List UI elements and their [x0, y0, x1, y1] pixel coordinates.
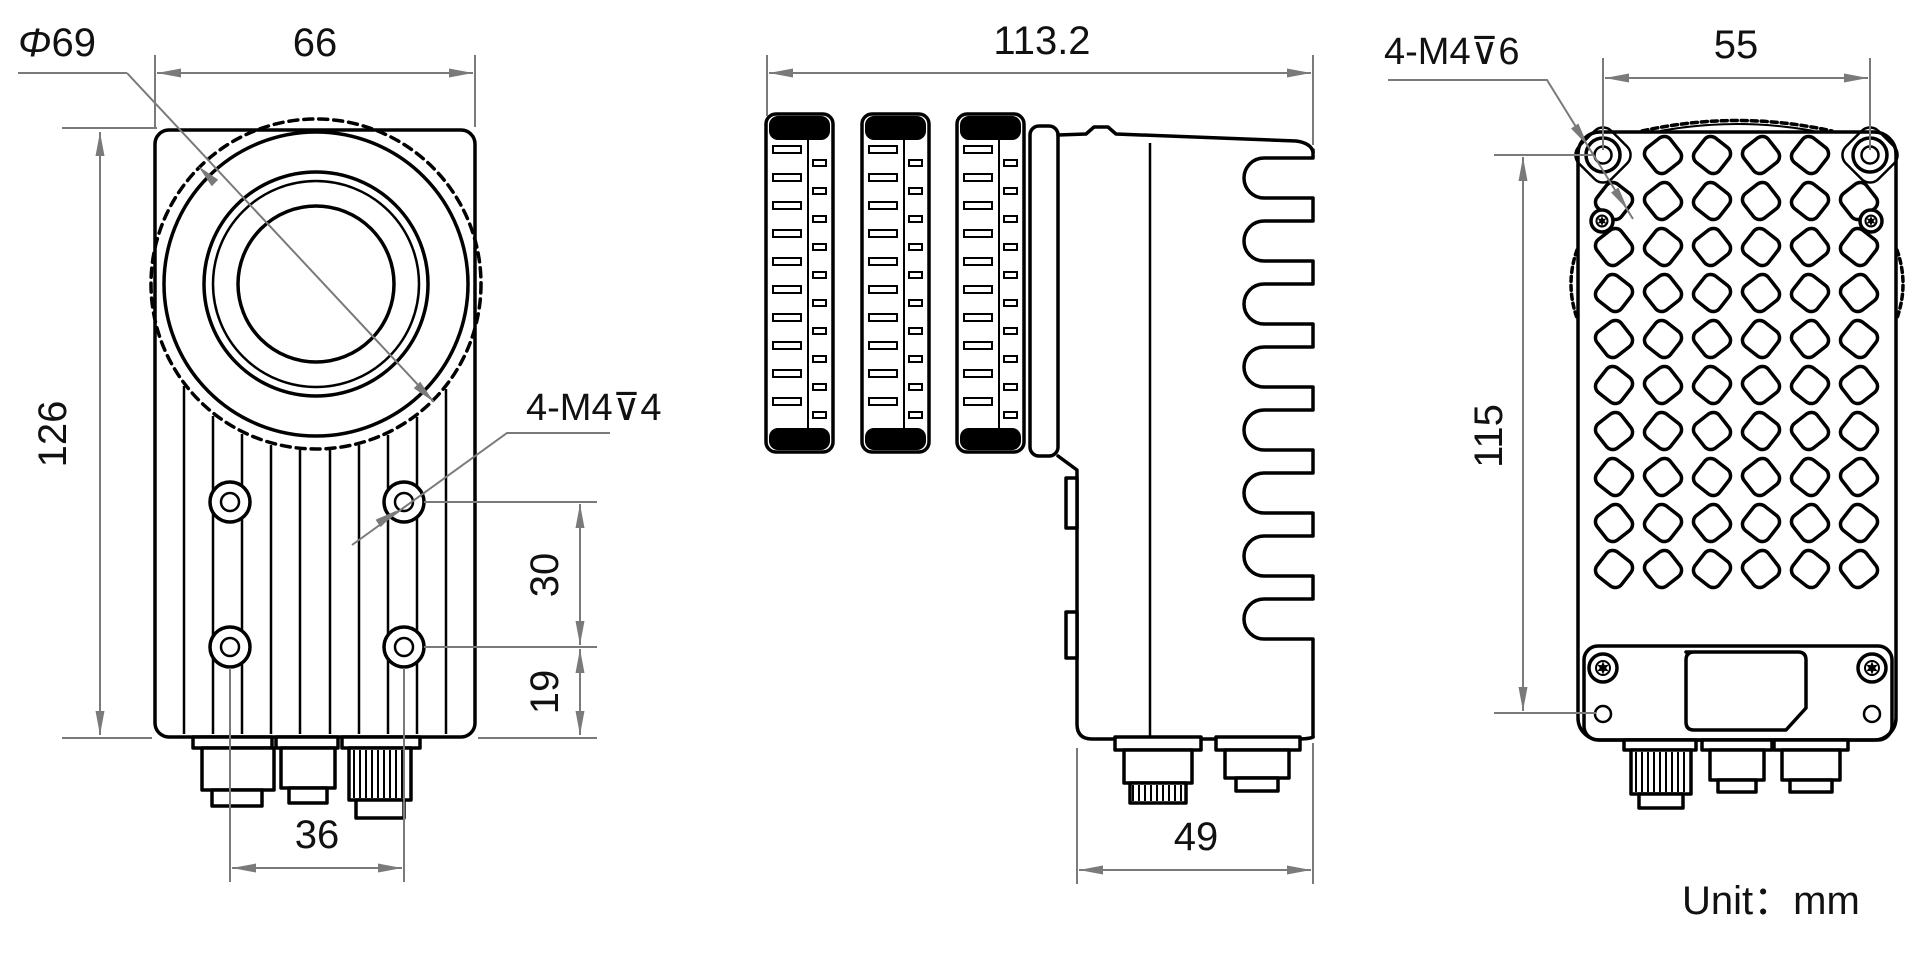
arrowhead — [1287, 866, 1311, 875]
knurl-slot — [869, 370, 897, 377]
knurl-slot — [909, 356, 922, 362]
knurl-slot — [1004, 272, 1017, 278]
knurl-slot — [964, 230, 992, 237]
knurl-slot — [813, 244, 826, 250]
connector-tip — [1718, 780, 1756, 792]
screw-hole — [384, 627, 424, 667]
arrowhead — [1519, 157, 1528, 181]
side-heatsink-fins — [1244, 150, 1313, 737]
connector-m12-tip — [356, 800, 404, 818]
dim-label-front-height: 126 — [31, 401, 75, 468]
back-right-knurl-bump — [1897, 250, 1903, 318]
dim-label-front-screws: 4-M4⊽4 — [526, 387, 662, 429]
knurl-slot — [869, 398, 897, 405]
connector-tip — [289, 788, 327, 803]
arrowhead — [157, 69, 181, 78]
knurl-slot — [869, 202, 897, 209]
knurl-slot — [1004, 328, 1017, 334]
lens-glass — [238, 206, 394, 362]
knurl-slot — [1004, 384, 1017, 390]
knurl-slot — [1004, 244, 1017, 250]
dim-label-front-width: 66 — [293, 21, 338, 65]
knurl-slot — [869, 258, 897, 265]
diameter-symbol: Φ — [18, 21, 51, 65]
screw-hole — [210, 627, 250, 667]
side-connectors — [1115, 737, 1300, 803]
front-connectors — [193, 737, 420, 818]
knurl-slot — [909, 384, 922, 390]
arrowhead — [378, 864, 402, 873]
knurl-slot — [869, 342, 897, 349]
technical-drawing: Φ69 66 126 4-M4⊽4 30 19 36 113.2 49 4-M4… — [0, 0, 1920, 960]
knurl-slot — [1004, 160, 1017, 166]
knurl-slot — [813, 216, 826, 222]
back-view — [1570, 121, 1903, 809]
lens-ring-group — [766, 114, 833, 452]
front-view — [151, 119, 481, 818]
side-lens-rings — [766, 114, 1024, 452]
knurl-slot — [813, 356, 826, 362]
arrowhead — [1605, 74, 1629, 83]
connector-body — [1124, 750, 1192, 783]
ring-cap-top — [769, 116, 830, 140]
connector-body — [202, 748, 274, 790]
dim-label-hole-spacing-36: 36 — [295, 813, 340, 857]
knurl-slot — [813, 412, 826, 418]
knurl-slot — [813, 328, 826, 334]
knurl-slot — [909, 300, 922, 306]
arrowhead — [576, 621, 585, 645]
dim-label-lens-diameter: Φ69 — [18, 21, 96, 65]
side-key-tab — [1066, 478, 1077, 528]
knurl-slot — [813, 300, 826, 306]
connector-m12-tip — [1639, 794, 1683, 808]
ring-cap-bottom — [865, 428, 926, 450]
arrowhead — [449, 69, 473, 78]
connector-body — [281, 748, 335, 788]
arrowhead — [1519, 687, 1528, 711]
side-body-top-edge — [1058, 127, 1313, 152]
knurl-slot — [869, 286, 897, 293]
dim-label-back-screws: 4-M4⊽6 — [1384, 31, 1520, 73]
back-connectors — [1624, 740, 1848, 808]
lens-mount-plate — [1030, 126, 1058, 456]
arrowhead — [576, 711, 585, 735]
dim-label-hole-offset-19: 19 — [523, 670, 567, 715]
diameter-value: 69 — [51, 21, 96, 65]
connector-tip — [212, 790, 262, 806]
knurl-slot — [773, 230, 801, 237]
knurl-slot — [813, 160, 826, 166]
knurl-slot — [964, 202, 992, 209]
side-view — [766, 114, 1313, 803]
knurl-slot — [773, 146, 801, 153]
knurl-slot — [773, 398, 801, 405]
knurl-slot — [813, 272, 826, 278]
dim-label-back-height-115: 115 — [1467, 404, 1511, 468]
knurl-slot — [869, 314, 897, 321]
knurl-slot — [964, 314, 992, 321]
knurl-slot — [909, 244, 922, 250]
connector-body — [1710, 750, 1764, 780]
arrowhead — [769, 69, 793, 78]
arrowhead — [576, 504, 585, 528]
arrowhead — [96, 132, 105, 156]
knurl-slot — [909, 328, 922, 334]
knurl-slot — [909, 188, 922, 194]
knurl-slot — [1004, 188, 1017, 194]
knurl-slot — [1004, 216, 1017, 222]
knurl-slot — [909, 272, 922, 278]
screw-hole — [210, 482, 250, 522]
lens-ring-group — [957, 114, 1024, 452]
knurl-slot — [964, 286, 992, 293]
connector-body — [1782, 750, 1840, 780]
arrowhead — [1287, 69, 1311, 78]
knurl-slot — [773, 258, 801, 265]
ring-cap-top — [865, 116, 926, 140]
knurl-slot — [869, 146, 897, 153]
knurl-slot — [773, 314, 801, 321]
knurl-slot — [909, 216, 922, 222]
arrowhead — [1079, 866, 1103, 875]
back-left-knurl-bump — [1571, 250, 1577, 318]
knurl-slot — [909, 160, 922, 166]
front-body-outline — [155, 130, 475, 737]
unit-note: Unit：mm — [1682, 879, 1860, 923]
knurl-slot — [813, 384, 826, 390]
knurl-slot — [964, 398, 992, 405]
knurl-slot — [1004, 356, 1017, 362]
fin-comb-path — [1244, 150, 1313, 737]
knurl-slot — [773, 342, 801, 349]
knurl-slot — [1004, 412, 1017, 418]
knurl-slot — [813, 188, 826, 194]
dim-label-back-width-55: 55 — [1714, 23, 1759, 67]
dim-label-side-length: 113.2 — [993, 19, 1090, 63]
connector-flange — [1216, 737, 1300, 750]
knurl-slot — [964, 370, 992, 377]
connector-flange — [1115, 737, 1201, 750]
back-body-outline — [1578, 132, 1896, 740]
connector-tip — [1236, 778, 1278, 791]
lens-ring-mid2 — [213, 181, 419, 387]
knurl-slot — [773, 174, 801, 181]
ring-cap-bottom — [769, 428, 830, 450]
arrowhead — [96, 711, 105, 735]
knurl-slot — [964, 342, 992, 349]
knurl-slot — [869, 230, 897, 237]
knurl-slot — [773, 202, 801, 209]
connector-tip — [1790, 780, 1832, 792]
arrowhead — [576, 649, 585, 673]
lens-ring-group — [862, 114, 929, 452]
ring-cap-top — [960, 116, 1021, 140]
knurl-slot — [773, 286, 801, 293]
side-key-tab — [1066, 612, 1077, 658]
knurl-slot — [869, 174, 897, 181]
dimensional-drawing-page: Φ69 66 126 4-M4⊽4 30 19 36 113.2 49 4-M4… — [0, 0, 1920, 960]
knurl-slot — [773, 370, 801, 377]
knurl-slot — [964, 258, 992, 265]
knurl-slot — [1004, 300, 1017, 306]
dim-label-hole-spacing-30: 30 — [523, 553, 567, 598]
arrowhead — [232, 864, 256, 873]
knurl-slot — [964, 146, 992, 153]
arrowhead — [1844, 74, 1868, 83]
front-heatsink-ribs — [184, 386, 446, 734]
ring-cap-bottom — [960, 428, 1021, 450]
knurl-slot — [909, 412, 922, 418]
connector-body — [1225, 750, 1289, 778]
knurl-slot — [964, 174, 992, 181]
dim-label-side-depth: 49 — [1174, 815, 1219, 859]
